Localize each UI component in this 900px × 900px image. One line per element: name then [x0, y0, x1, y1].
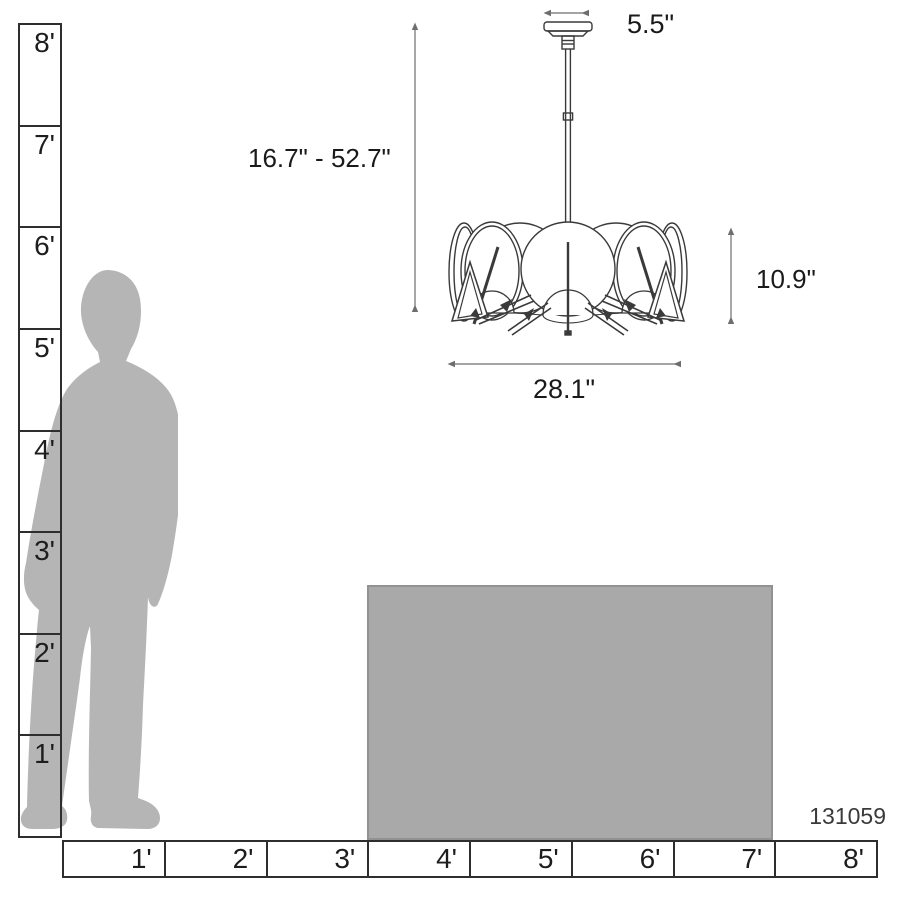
- horizontal-ruler-cell-6ft: 6': [573, 842, 675, 876]
- vertical-ruler-label: 6': [34, 232, 55, 260]
- vertical-ruler: 8'7'6'5'4'3'2'1': [18, 23, 62, 838]
- product-sku: 131059: [770, 803, 886, 830]
- table-block: [367, 585, 773, 840]
- canopy-plate: [544, 22, 592, 31]
- horizontal-ruler-label: 5': [538, 845, 571, 873]
- vertical-ruler-label: 4': [34, 436, 55, 464]
- horizontal-ruler-cell-2ft: 2': [166, 842, 268, 876]
- horizontal-ruler-label: 7': [741, 845, 774, 873]
- horizontal-ruler: 1'2'3'4'5'6'7'8': [62, 840, 878, 878]
- horizontal-ruler-cell-3ft: 3': [268, 842, 370, 876]
- horizontal-ruler-label: 1': [131, 845, 164, 873]
- horizontal-ruler-label: 4': [436, 845, 469, 873]
- fixture-width-label: 28.1": [533, 373, 595, 405]
- horizontal-ruler-cell-1ft: 1': [64, 842, 166, 876]
- canopy-lip: [548, 31, 588, 36]
- horizontal-ruler-label: 3': [334, 845, 367, 873]
- horizontal-ruler-label: 2': [233, 845, 266, 873]
- vertical-ruler-cell-5ft: 5': [20, 330, 60, 432]
- vertical-ruler-cell-4ft: 4': [20, 432, 60, 534]
- vertical-ruler-cell-2ft: 2': [20, 635, 60, 737]
- vertical-ruler-label: 7': [34, 131, 55, 159]
- horizontal-ruler-cell-8ft: 8': [776, 842, 876, 876]
- vertical-ruler-label: 3': [34, 537, 55, 565]
- vertical-ruler-label: 5': [34, 334, 55, 362]
- height-range-label: 16.7" - 52.7": [248, 143, 391, 174]
- fixture-height-label: 10.9": [756, 264, 816, 295]
- horizontal-ruler-cell-7ft: 7': [675, 842, 777, 876]
- dimension-diagram: 5.5" 16.7" - 52.7" 10.9" 28.1" 131059 8'…: [0, 0, 900, 900]
- vertical-ruler-cell-3ft: 3': [20, 533, 60, 635]
- horizontal-ruler-cell-4ft: 4': [369, 842, 471, 876]
- canopy-width-label: 5.5": [627, 8, 674, 40]
- horizontal-ruler-label: 8': [843, 845, 876, 873]
- vertical-ruler-cell-1ft: 1': [20, 736, 60, 836]
- horizontal-ruler-label: 6': [640, 845, 673, 873]
- vertical-ruler-label: 8': [34, 29, 55, 57]
- chandelier-lineart: [449, 22, 687, 335]
- vertical-ruler-cell-8ft: 8': [20, 25, 60, 127]
- vertical-ruler-cell-6ft: 6': [20, 228, 60, 330]
- chandelier-drawing: [410, 0, 750, 410]
- horizontal-ruler-cell-5ft: 5': [471, 842, 573, 876]
- stem-neck: [562, 36, 574, 49]
- vertical-ruler-label: 1': [34, 740, 55, 768]
- vertical-ruler-label: 2': [34, 639, 55, 667]
- stem-connector: [563, 113, 572, 120]
- vertical-ruler-cell-7ft: 7': [20, 127, 60, 229]
